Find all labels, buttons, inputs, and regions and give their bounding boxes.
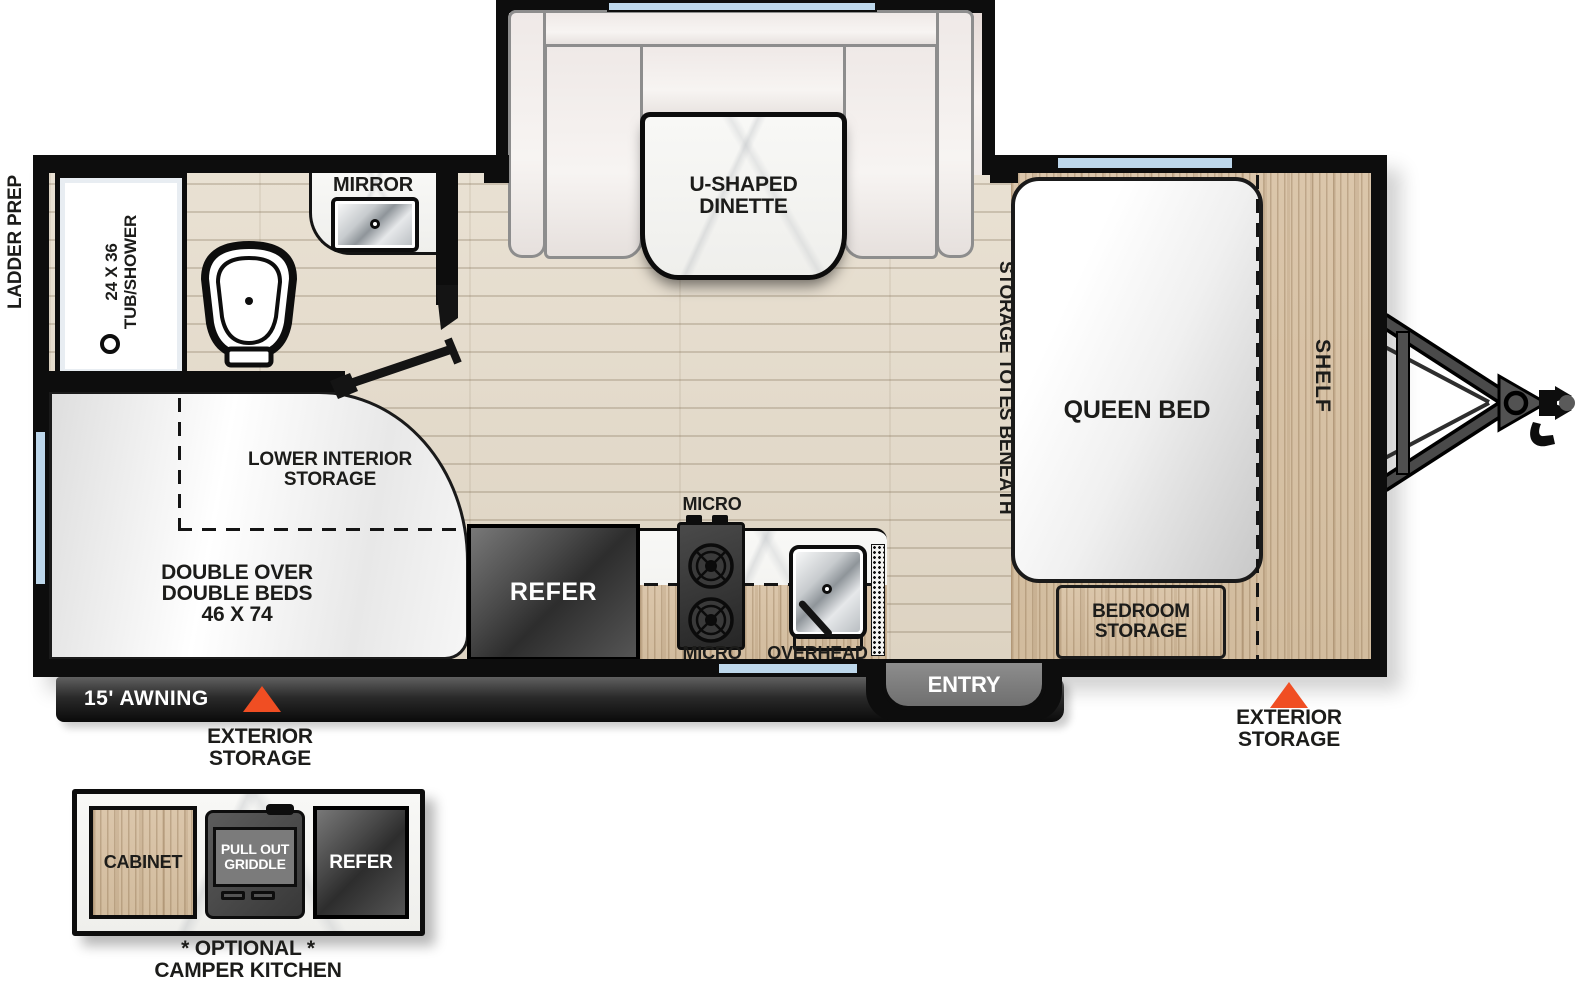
ext-left-line1: EXTERIOR bbox=[207, 726, 313, 748]
burners-icon bbox=[677, 522, 745, 650]
lower-storage-line1: LOWER INTERIOR bbox=[248, 450, 412, 470]
counter-end-grate bbox=[871, 544, 885, 656]
dinette-seat-left bbox=[544, 44, 643, 259]
storage-totes-label: STORAGE TOTES BENEATH bbox=[988, 233, 1016, 543]
refer-label: REFER bbox=[510, 578, 597, 607]
slideout-wall-right bbox=[982, 0, 995, 175]
wall-right bbox=[1371, 155, 1387, 677]
lower-storage-line2: STORAGE bbox=[284, 470, 376, 490]
kitchen-faucet-icon bbox=[822, 584, 832, 594]
dinette-window bbox=[607, 1, 877, 12]
bunk-window bbox=[34, 430, 47, 586]
floorplan-canvas: LADDER PREP U-SHAPED DINETTE bbox=[0, 0, 1575, 983]
mirror-label: MIRROR bbox=[309, 174, 437, 197]
wall-left bbox=[33, 155, 49, 677]
griddle-foot-left bbox=[221, 891, 245, 900]
entry-label: ENTRY bbox=[928, 672, 1001, 698]
bunk-label-line1: DOUBLE OVER bbox=[161, 562, 313, 583]
queen-bed-label: QUEEN BED bbox=[1011, 396, 1263, 425]
camper-refer-label: REFER bbox=[329, 852, 392, 874]
bedroom-window bbox=[1056, 156, 1234, 170]
dinette-back-cushion bbox=[508, 10, 974, 48]
bunk-label: DOUBLE OVER DOUBLE BEDS 46 X 74 bbox=[97, 562, 377, 625]
slideout-jamb-left bbox=[484, 155, 509, 183]
queen-bed bbox=[1011, 177, 1263, 583]
ext-left-line2: STORAGE bbox=[209, 748, 311, 770]
exterior-storage-label-right: EXTERIOR STORAGE bbox=[1211, 707, 1367, 751]
micro-label-bottom: MICRO bbox=[652, 643, 772, 664]
bathroom-faucet-icon bbox=[370, 219, 380, 229]
caption-line1: * OPTIONAL * bbox=[181, 938, 315, 960]
bedroom-storage-line1: BEDROOM bbox=[1092, 602, 1190, 622]
caption-line2: CAMPER KITCHEN bbox=[154, 960, 341, 982]
exterior-storage-marker-left bbox=[243, 686, 281, 712]
bunk-label-line3: 46 X 74 bbox=[202, 604, 273, 625]
ext-right-line1: EXTERIOR bbox=[1236, 707, 1342, 729]
exterior-storage-label-left: EXTERIOR STORAGE bbox=[182, 726, 338, 770]
slideout-jamb-right bbox=[990, 155, 1018, 183]
tub-drain-icon bbox=[100, 334, 120, 354]
awning-label: 15' AWNING bbox=[84, 687, 209, 711]
bedroom-storage: BEDROOM STORAGE bbox=[1056, 585, 1226, 659]
griddle-screen: PULL OUT GRIDDLE bbox=[213, 827, 297, 887]
dinette-seat-center bbox=[640, 44, 846, 122]
exterior-storage-marker-right bbox=[1270, 682, 1308, 708]
camper-refer: REFER bbox=[313, 806, 409, 919]
bathroom-door-icon bbox=[320, 285, 480, 400]
camper-cabinet-label: CABINET bbox=[104, 852, 183, 873]
camper-kitchen-caption: * OPTIONAL * CAMPER KITCHEN bbox=[118, 938, 378, 982]
lower-storage-dash-left bbox=[178, 398, 181, 530]
lower-storage-dash-bottom bbox=[178, 528, 466, 531]
dinette-armrest-left bbox=[508, 10, 546, 258]
dinette-label-line2: DINETTE bbox=[699, 196, 787, 218]
bunk-label-line2: DOUBLE BEDS bbox=[162, 583, 313, 604]
camper-cabinet: CABINET bbox=[89, 806, 197, 919]
ext-right-line2: STORAGE bbox=[1238, 729, 1340, 751]
dinette-table: U-SHAPED DINETTE bbox=[640, 112, 847, 280]
griddle-line1: PULL OUT bbox=[221, 842, 289, 857]
overhead-label: OVERHEAD bbox=[760, 643, 875, 664]
shelf-label: SHELF bbox=[1300, 298, 1334, 453]
dinette-seat-right bbox=[843, 44, 938, 259]
trailer-hitch-icon bbox=[1383, 300, 1575, 505]
griddle-foot-right bbox=[251, 891, 275, 900]
tub-label-line2: TUB/SHOWER bbox=[121, 215, 140, 329]
entry-step: ENTRY bbox=[882, 659, 1046, 710]
tub-label-line1: 24 X 36 bbox=[102, 243, 121, 300]
dinette-armrest-right bbox=[936, 10, 974, 258]
griddle-knob-icon bbox=[266, 804, 294, 815]
micro-label-top: MICRO bbox=[652, 494, 772, 515]
bathroom-wall bbox=[33, 371, 345, 392]
lower-storage-label: LOWER INTERIOR STORAGE bbox=[195, 450, 465, 490]
refrigerator: REFER bbox=[467, 524, 640, 661]
dinette-label-line1: U-SHAPED bbox=[689, 174, 797, 196]
wall-top-left bbox=[33, 155, 503, 173]
ladder-prep-label: LADDER PREP bbox=[5, 157, 27, 327]
bedroom-storage-line2: STORAGE bbox=[1095, 622, 1187, 642]
toilet-icon bbox=[193, 237, 305, 375]
griddle-line2: GRIDDLE bbox=[224, 857, 286, 872]
